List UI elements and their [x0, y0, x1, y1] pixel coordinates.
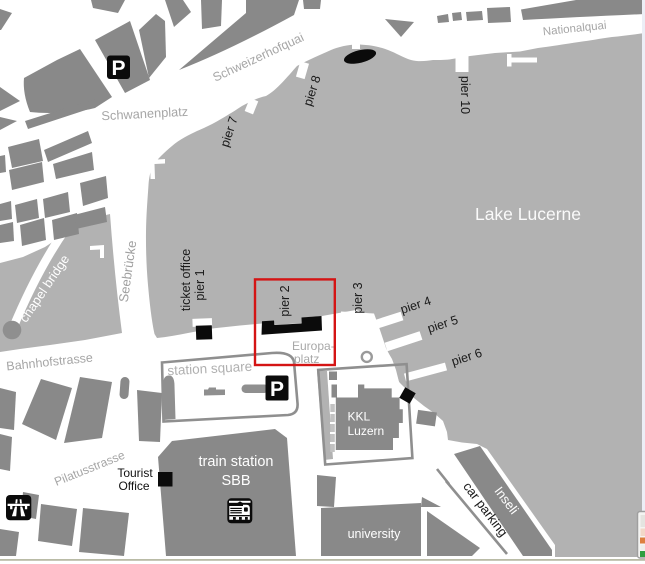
svg-text:P: P	[111, 57, 125, 80]
svg-text:P: P	[270, 378, 284, 401]
svg-text:KKL: KKL	[348, 410, 371, 424]
svg-text:ticket office: ticket office	[179, 249, 193, 311]
svg-text:pier 3: pier 3	[351, 282, 365, 313]
svg-text:pier 2: pier 2	[278, 285, 292, 316]
svg-text:train station: train station	[199, 454, 274, 470]
svg-text:Luzern: Luzern	[348, 424, 385, 438]
svg-text:university: university	[348, 527, 402, 541]
svg-text:Office: Office	[118, 479, 149, 493]
svg-text:pier 10: pier 10	[458, 76, 472, 114]
svg-text:pier 1: pier 1	[193, 269, 207, 300]
svg-text:SBB: SBB	[221, 473, 250, 489]
svg-text:Lake Lucerne: Lake Lucerne	[475, 204, 581, 224]
svg-text:Tourist: Tourist	[117, 466, 153, 480]
svg-text:Europa-: Europa-	[292, 339, 335, 353]
